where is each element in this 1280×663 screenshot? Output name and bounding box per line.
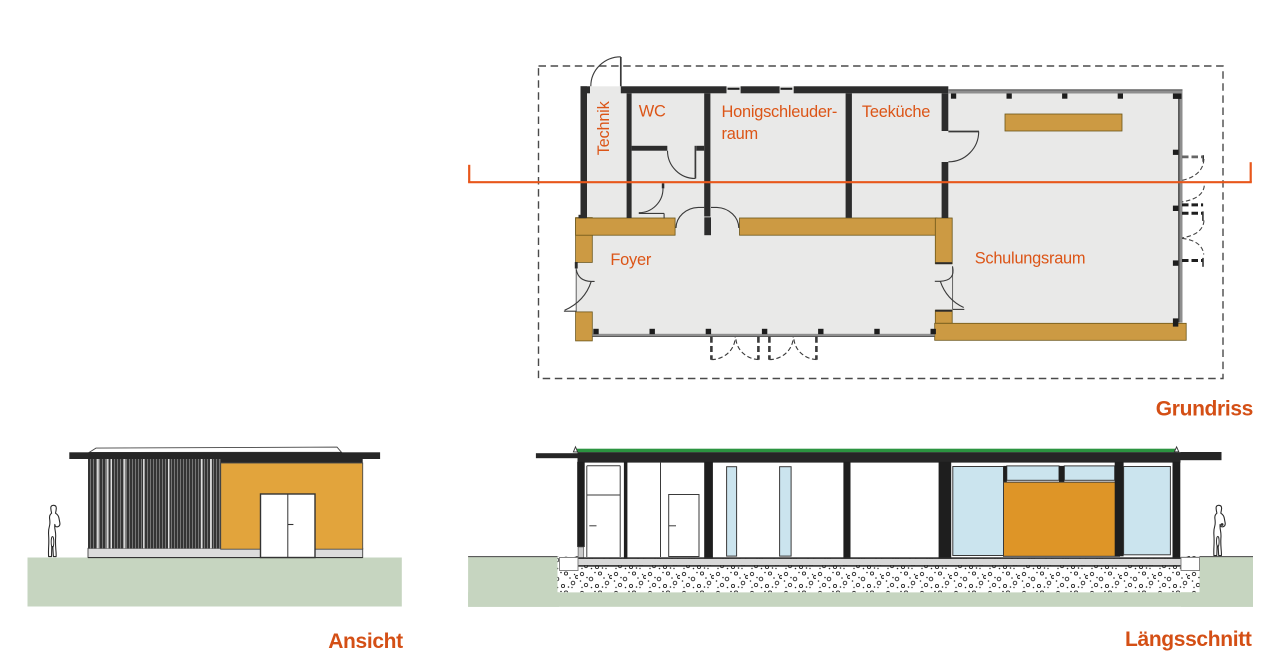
- svg-text:Grundriss: Grundriss: [1156, 398, 1253, 421]
- svg-text:Technik: Technik: [595, 100, 613, 155]
- svg-text:raum: raum: [722, 125, 758, 143]
- svg-text:Ansicht: Ansicht: [328, 630, 403, 653]
- svg-text:WC: WC: [639, 103, 666, 121]
- svg-text:Honigschleuder-: Honigschleuder-: [722, 103, 838, 121]
- svg-text:Längsschnitt: Längsschnitt: [1125, 628, 1252, 651]
- svg-text:Foyer: Foyer: [610, 251, 651, 269]
- svg-text:Teeküche: Teeküche: [862, 103, 930, 121]
- svg-text:Schulungsraum: Schulungsraum: [975, 250, 1086, 268]
